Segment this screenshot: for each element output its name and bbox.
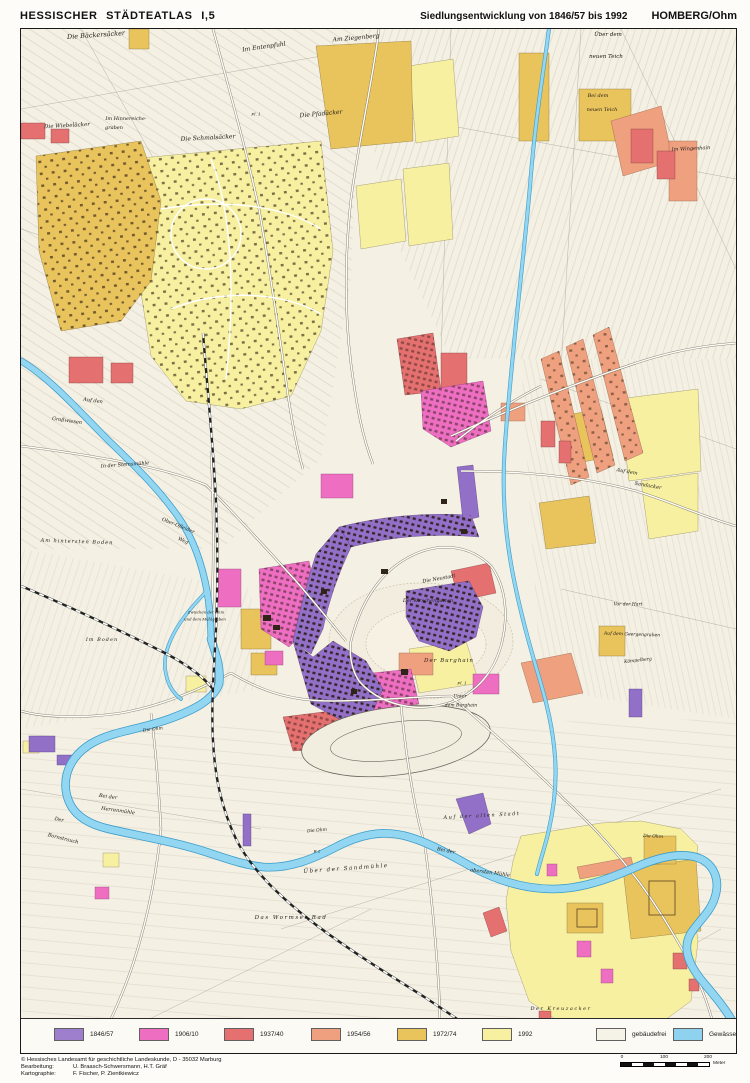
header: HESSISCHER STÄDTEATLAS I,5 Siedlungsentw…: [20, 0, 737, 27]
legend-swatch: [54, 1028, 84, 1041]
legend-label: 1846/57: [90, 1031, 114, 1038]
city-name: HOMBERG/Ohm: [651, 10, 737, 22]
atlas-page: { "header": { "title": "HESSISCHER STÄDT…: [0, 0, 750, 1083]
legend-label: 1992: [518, 1031, 532, 1038]
legend-label: 1954/56: [347, 1031, 371, 1038]
legend-label: Gewässer: [709, 1031, 737, 1038]
legend-swatch: [224, 1028, 254, 1041]
header-right: Siedlungsentwicklung von 1846/57 bis 199…: [420, 10, 737, 22]
scale-bar: 0 100 200 Meter: [620, 1055, 730, 1071]
legend: 1846/571906/101937/401954/561972/741992g…: [21, 1018, 736, 1053]
legend-label: gebäudefrei: [632, 1031, 666, 1038]
map-subtitle: Siedlungsentwicklung von 1846/57 bis 199…: [420, 11, 627, 22]
scale-segment: [654, 1063, 665, 1066]
scale-unit: Meter: [713, 1061, 725, 1066]
scale-start: 0: [621, 1055, 624, 1060]
legend-item: Gewässer: [673, 1028, 737, 1041]
legend-label: 1937/40: [260, 1031, 284, 1038]
legend-swatch: [311, 1028, 341, 1041]
legend-swatch: [673, 1028, 703, 1041]
scale-segment: [665, 1063, 676, 1066]
cartography-names: F. Fischer, P. Zientkiewicz: [73, 1071, 139, 1078]
scale-segment: [687, 1063, 698, 1066]
cartography-line: Kartographie: F. Fischer, P. Zientkiewic…: [21, 1071, 222, 1078]
legend-swatch: [596, 1028, 626, 1041]
legend-item: 1992: [482, 1028, 532, 1041]
legend-item: gebäudefrei: [596, 1028, 666, 1041]
zone-1992-buildings: [131, 141, 333, 409]
map-image: [21, 29, 736, 1053]
scale-segment: [632, 1063, 643, 1066]
legend-item: 1906/10: [139, 1028, 199, 1041]
scale-mid: 100: [660, 1055, 668, 1060]
editing-label: Bearbeitung:: [21, 1064, 73, 1071]
legend-item: 1972/74: [397, 1028, 457, 1041]
scale-bar-segments: [620, 1062, 710, 1067]
page-title: HESSISCHER STÄDTEATLAS I,5: [20, 10, 215, 22]
scale-segment: [643, 1063, 654, 1066]
legend-label: 1972/74: [433, 1031, 457, 1038]
legend-swatch: [482, 1028, 512, 1041]
editing-names: U. Braasch-Schwersmann, H.T. Gräf: [73, 1064, 167, 1071]
copyright-text: © Hessisches Landesamt für geschichtlich…: [21, 1057, 222, 1064]
legend-swatch: [139, 1028, 169, 1041]
scale-end: 200: [704, 1055, 712, 1060]
legend-item: 1846/57: [54, 1028, 114, 1041]
legend-label: 1906/10: [175, 1031, 199, 1038]
scale-segment: [621, 1063, 632, 1066]
scale-segment: [698, 1063, 709, 1066]
copyright-line: © Hessisches Landesamt für geschichtlich…: [21, 1057, 222, 1064]
cartography-label: Kartographie:: [21, 1071, 73, 1078]
editing-line: Bearbeitung: U. Braasch-Schwersmann, H.T…: [21, 1064, 222, 1071]
legend-item: 1954/56: [311, 1028, 371, 1041]
credits: © Hessisches Landesamt für geschichtlich…: [21, 1057, 222, 1079]
legend-swatch: [397, 1028, 427, 1041]
map-frame: Die BäckersäckerIm EntenpfuhlAm Ziegenbe…: [20, 28, 737, 1054]
legend-item: 1937/40: [224, 1028, 284, 1041]
scale-segment: [676, 1063, 687, 1066]
